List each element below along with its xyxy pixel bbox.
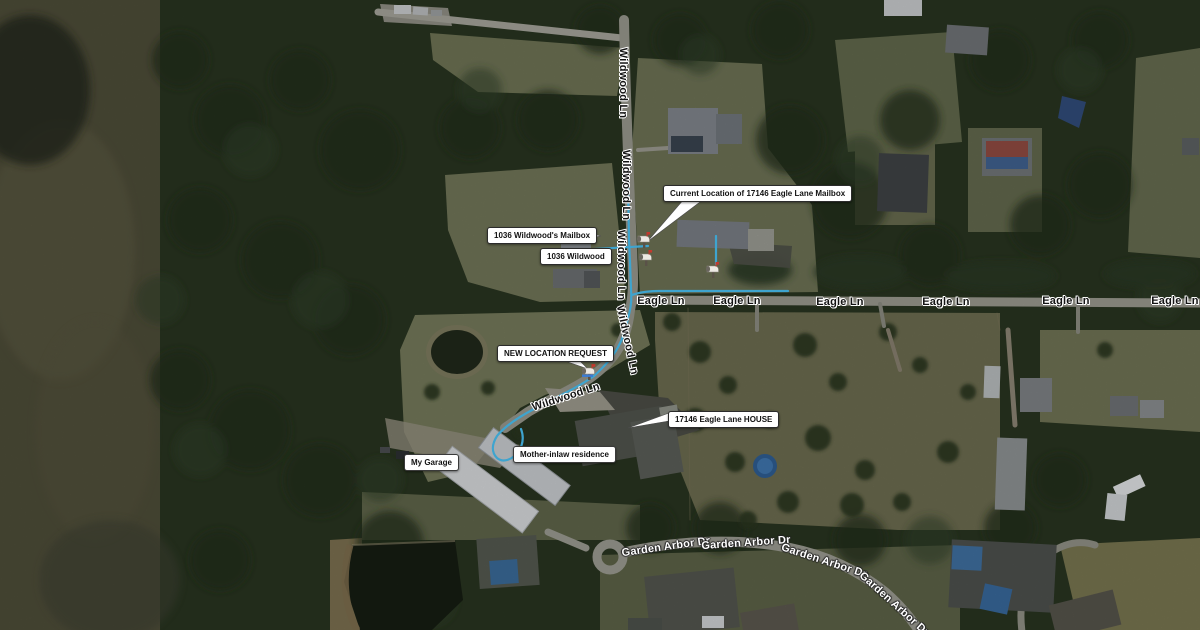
callout-17146-eagle-lane-house: 17146 Eagle Lane HOUSE xyxy=(668,411,779,428)
mailbox-icon xyxy=(637,249,655,272)
noise-overlay xyxy=(0,0,1200,630)
callout-1036-wildwoods-mailbox: 1036 Wildwood's Mailbox xyxy=(487,227,597,244)
map-canvas xyxy=(0,0,1200,630)
callout-1036-wildwood: 1036 Wildwood xyxy=(540,248,612,265)
callout-current-mailbox-location: Current Location of 17146 Eagle Lane Mai… xyxy=(663,185,852,202)
callout-my-garage: My Garage xyxy=(404,454,459,471)
callout-new-location-request: NEW LOCATION REQUEST xyxy=(497,345,614,362)
new-location-mailbox-icon xyxy=(580,362,600,387)
callout-mother-inlaw-residence: Mother-inlaw residence xyxy=(513,446,616,463)
mailbox-icon xyxy=(704,261,722,284)
annotated-satellite-map: Wildwood Ln Wildwood Ln Wildwood Ln Wild… xyxy=(0,0,1200,630)
